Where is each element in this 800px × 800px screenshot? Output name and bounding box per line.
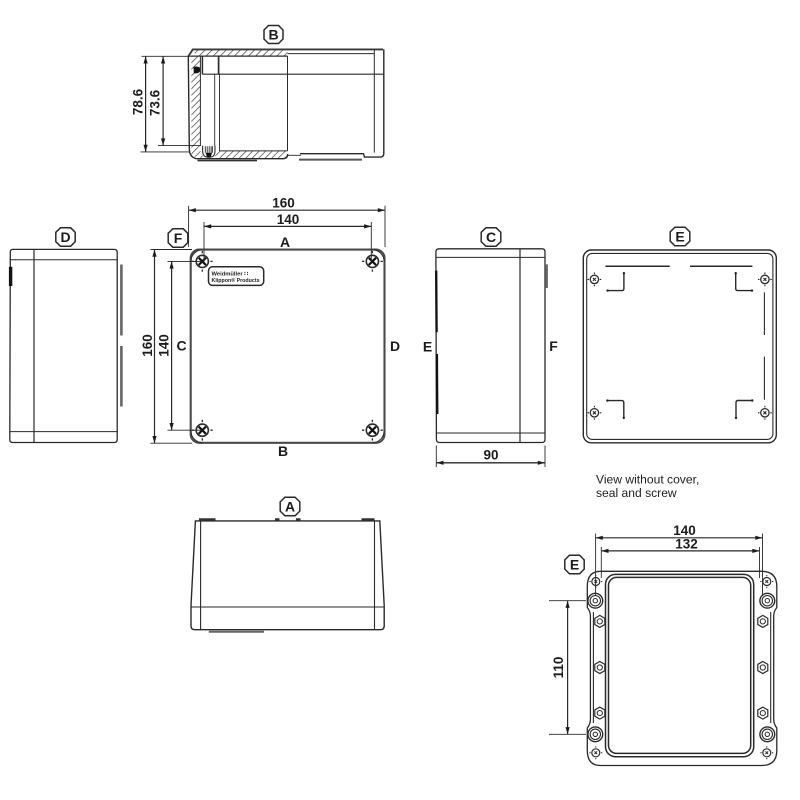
svg-text:78.6: 78.6 bbox=[131, 88, 146, 115]
svg-text:F: F bbox=[174, 230, 183, 246]
svg-text:140: 140 bbox=[157, 334, 172, 357]
svg-text:A: A bbox=[285, 499, 295, 515]
svg-text:E: E bbox=[423, 339, 432, 355]
svg-text:F: F bbox=[549, 338, 558, 354]
svg-text:Klippon® Products: Klippon® Products bbox=[212, 277, 260, 284]
svg-text:A: A bbox=[280, 234, 290, 250]
svg-text:seal and screw: seal and screw bbox=[596, 486, 677, 500]
svg-text:View without cover,: View without cover, bbox=[596, 473, 699, 487]
svg-text:Weidmüller ∷: Weidmüller ∷ bbox=[212, 271, 249, 277]
svg-text:132: 132 bbox=[675, 537, 698, 552]
svg-text:160: 160 bbox=[272, 196, 295, 211]
svg-text:D: D bbox=[60, 229, 70, 245]
svg-text:160: 160 bbox=[140, 334, 155, 357]
svg-text:C: C bbox=[176, 338, 186, 354]
svg-text:B: B bbox=[278, 443, 288, 459]
svg-text:E: E bbox=[570, 557, 579, 573]
svg-text:E: E bbox=[675, 229, 684, 245]
svg-text:C: C bbox=[486, 229, 496, 245]
svg-text:110: 110 bbox=[551, 657, 566, 679]
svg-text:140: 140 bbox=[277, 212, 300, 227]
svg-text:B: B bbox=[268, 27, 278, 43]
svg-text:D: D bbox=[390, 338, 400, 354]
svg-text:90: 90 bbox=[483, 448, 498, 463]
svg-text:73.6: 73.6 bbox=[148, 89, 163, 116]
